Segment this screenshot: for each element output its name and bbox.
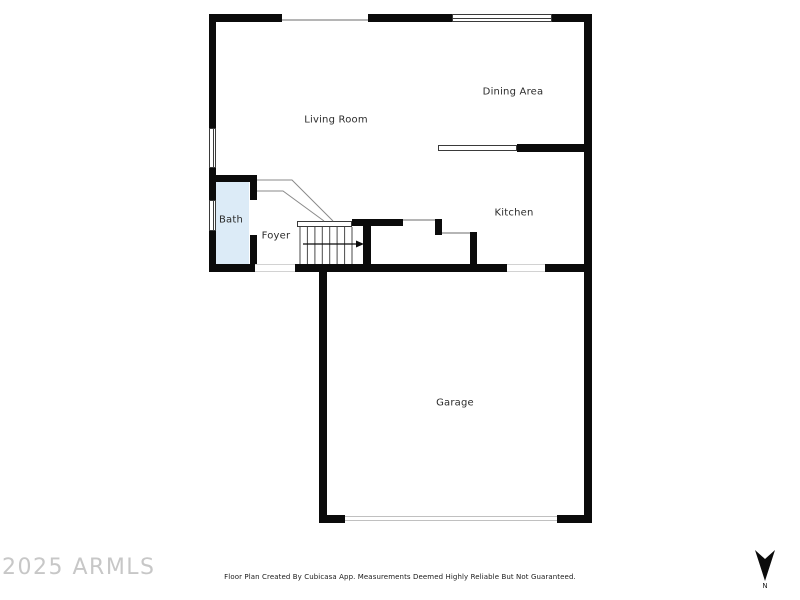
kitchen-opening-line-b	[442, 232, 470, 234]
kitchen-interior-right-wall	[470, 232, 477, 264]
stair-upper-flight-lines	[257, 180, 333, 221]
garage-bottom-wall-right	[557, 515, 592, 523]
wall-bottom-segment-c	[545, 264, 592, 272]
bath-right-wall-upper	[250, 175, 257, 200]
stair-direction-arrow	[303, 241, 364, 248]
room-label-foyer: Foyer	[262, 231, 291, 242]
living-room-window-pane-line	[213, 129, 214, 167]
floor-plan: Living Room Dining Area Kitchen Bath Foy…	[0, 0, 800, 600]
wall-top-opening-line	[282, 19, 368, 21]
garage-bottom-wall-left	[319, 515, 345, 523]
kitchen-wall-stub	[435, 219, 442, 235]
bath-right-wall-lower	[250, 235, 257, 264]
room-label-kitchen: Kitchen	[495, 208, 534, 219]
living-room-window	[209, 128, 216, 168]
wall-bottom-segment-b	[295, 264, 507, 272]
wall-bottom-segment-a	[210, 264, 255, 272]
disclaimer-text: Floor Plan Created By Cubicasa App. Meas…	[0, 573, 800, 581]
room-label-living-room: Living Room	[304, 115, 368, 126]
dining-kitchen-divider-wall	[517, 144, 584, 152]
kitchen-garage-door-opening	[507, 264, 545, 272]
north-label: N	[762, 582, 767, 590]
plan-linework	[0, 0, 800, 600]
kitchen-counter-halfwall	[438, 145, 517, 151]
front-door-opening	[255, 264, 295, 272]
room-label-garage: Garage	[436, 398, 474, 409]
wall-top-middle-segment	[368, 14, 452, 22]
garage-left-wall	[319, 272, 327, 523]
garage-door-opening	[345, 516, 557, 521]
wall-top-left-segment	[210, 14, 282, 22]
stair-tread-lines	[300, 227, 352, 264]
bath-window	[209, 200, 216, 231]
dining-window-pane-line	[453, 18, 551, 19]
room-label-dining-area: Dining Area	[483, 87, 544, 98]
stair-right-wall	[363, 219, 371, 264]
stair-landing-edge	[297, 221, 352, 227]
kitchen-opening-line-a	[403, 219, 435, 221]
room-label-bath: Bath	[219, 215, 243, 226]
kitchen-interior-top-wall	[352, 219, 403, 226]
bath-window-pane-line	[213, 201, 214, 230]
dining-window	[452, 14, 552, 22]
